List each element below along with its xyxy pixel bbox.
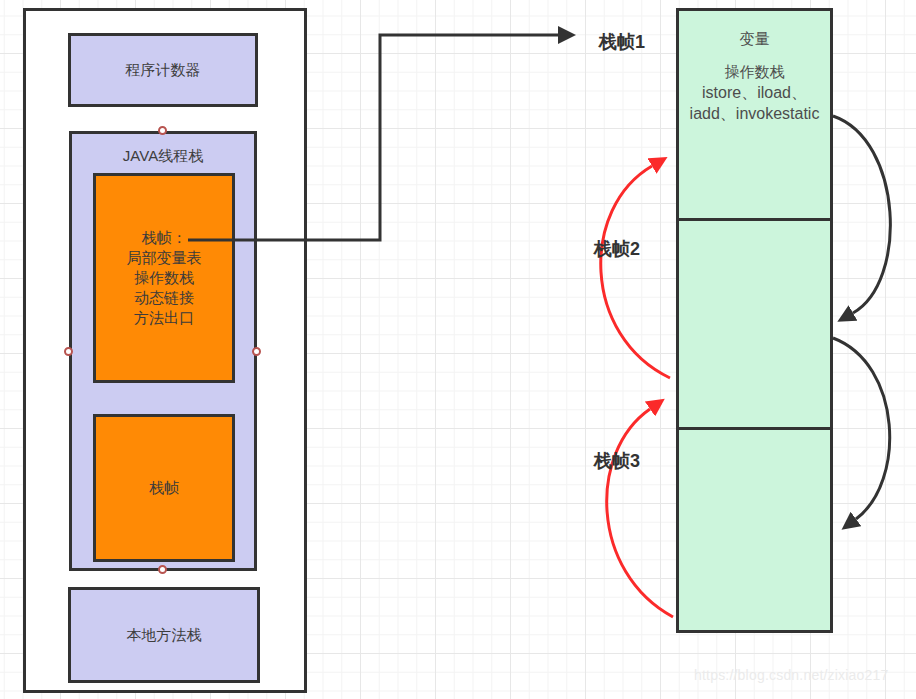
stack-frame-detail-line: 动态链接: [134, 288, 194, 308]
instructions-line: iadd、invokestatic: [690, 103, 820, 124]
program-counter-label: 程序计数器: [126, 61, 201, 80]
frame3-label: 栈帧3: [594, 449, 640, 473]
stack-frame-detail-box: 栈帧： 局部变量表 操作数栈 动态链接 方法出口: [93, 173, 235, 383]
connector-point-left: [64, 347, 73, 356]
connector-point-top: [158, 126, 167, 135]
red-return-arrow-frame2-to-frame1: [601, 166, 670, 378]
frame2-label: 栈帧2: [594, 237, 640, 261]
connector-point-bottom: [158, 565, 167, 574]
native-method-stack-box: 本地方法栈: [68, 587, 260, 683]
stack-frame-detail-line: 方法出口: [134, 308, 194, 328]
connector-point-right: [252, 347, 261, 356]
operand-stack-label: 操作数栈: [725, 62, 785, 82]
frame1-label: 栈帧1: [599, 30, 645, 54]
stack-frame-detail-line: 局部变量表: [127, 248, 202, 268]
variable-label: 变量: [740, 30, 770, 49]
instructions-line: istore、iload、: [702, 82, 807, 103]
stack-frame-label: 栈帧: [149, 479, 179, 498]
black-call-arrow-frame2-to-frame3: [833, 338, 890, 519]
red-return-arrow-frame3-to-frame2: [607, 409, 673, 617]
watermark: https://blog.csdn.net/zixiao217: [694, 667, 889, 683]
frame1-section: 变量 操作数栈 istore、iload、 iadd、invokestatic: [679, 11, 830, 124]
java-thread-stack-label: JAVA线程栈: [72, 147, 254, 166]
frame-stack-box: 变量 操作数栈 istore、iload、 iadd、invokestatic: [676, 8, 833, 633]
frame-divider: [679, 427, 830, 430]
stack-frame-detail-line: 操作数栈: [134, 268, 194, 288]
stack-frame-detail-line: 栈帧：: [142, 228, 187, 248]
native-method-stack-label: 本地方法栈: [127, 626, 202, 645]
program-counter-box: 程序计数器: [68, 33, 258, 107]
black-call-arrow-frame1-to-frame2: [833, 116, 890, 313]
frame-divider: [679, 218, 830, 221]
stack-frame-box: 栈帧: [93, 414, 235, 562]
